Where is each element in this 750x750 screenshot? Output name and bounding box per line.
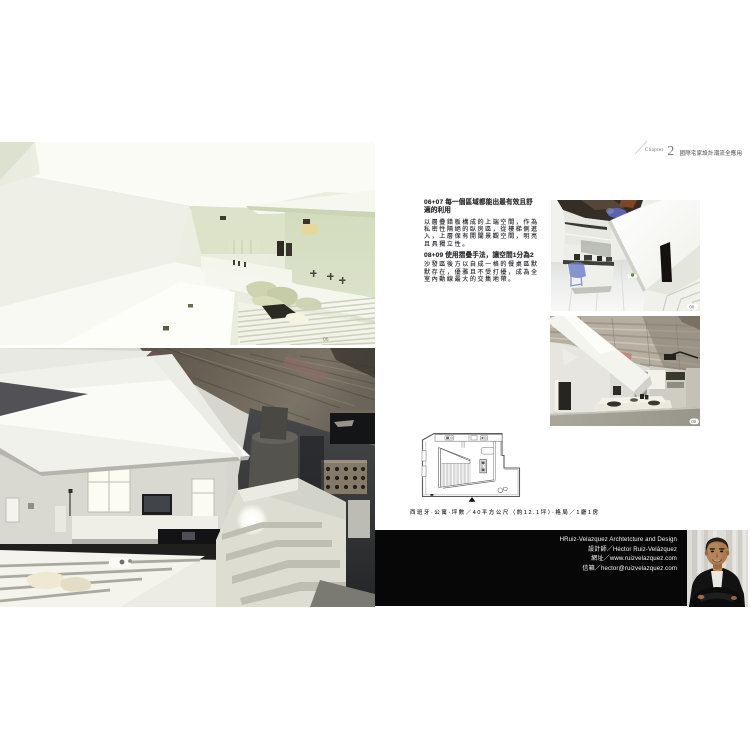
svg-text:06: 06 [323, 337, 329, 343]
svg-text:08: 08 [689, 304, 695, 309]
svg-text:09: 09 [691, 419, 696, 424]
